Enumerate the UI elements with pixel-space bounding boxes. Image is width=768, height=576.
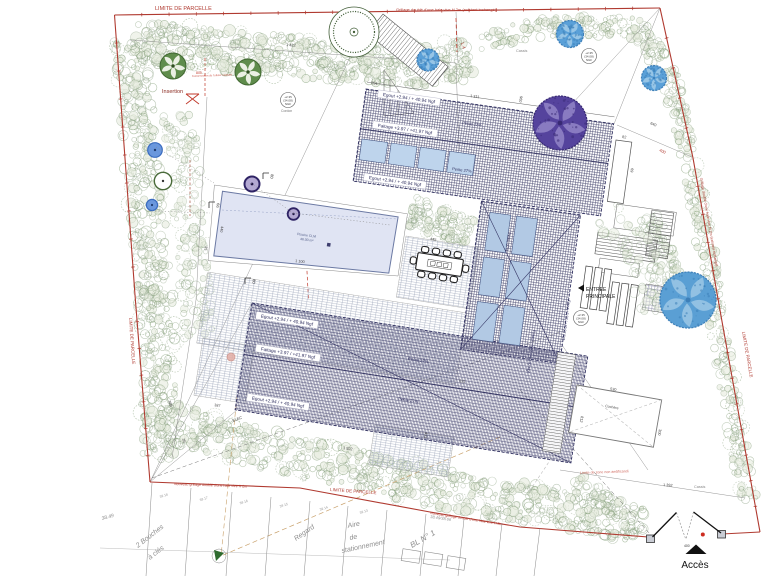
svg-text:NGF: NGF	[586, 58, 593, 62]
svg-text:Insertion: Insertion	[162, 89, 183, 95]
svg-text:1 392: 1 392	[663, 483, 673, 488]
svg-text:82: 82	[622, 135, 627, 140]
svg-text:69: 69	[629, 168, 634, 173]
svg-text:1 422: 1 422	[286, 43, 296, 48]
svg-text:Cassis: Cassis	[694, 485, 705, 489]
svg-text:400: 400	[684, 544, 690, 548]
svg-text:35: 35	[203, 246, 208, 251]
svg-text:ENTREE: ENTREE	[586, 287, 607, 293]
svg-text:Cassis: Cassis	[516, 49, 527, 53]
svg-text:Grillage doublé d'une haie viv: Grillage doublé d'une haie vive H 2m (ex…	[396, 7, 497, 12]
svg-text:NGF: NGF	[285, 102, 292, 106]
svg-text:LIMITE DE PARCELLE: LIMITE DE PARCELLE	[155, 6, 212, 12]
svg-text:NGF: NGF	[578, 320, 585, 324]
svg-text:Accès: Accès	[681, 560, 708, 571]
svg-text:PRINCIPALE: PRINCIPALE	[586, 294, 616, 300]
svg-text:Cordon: Cordon	[281, 109, 292, 113]
